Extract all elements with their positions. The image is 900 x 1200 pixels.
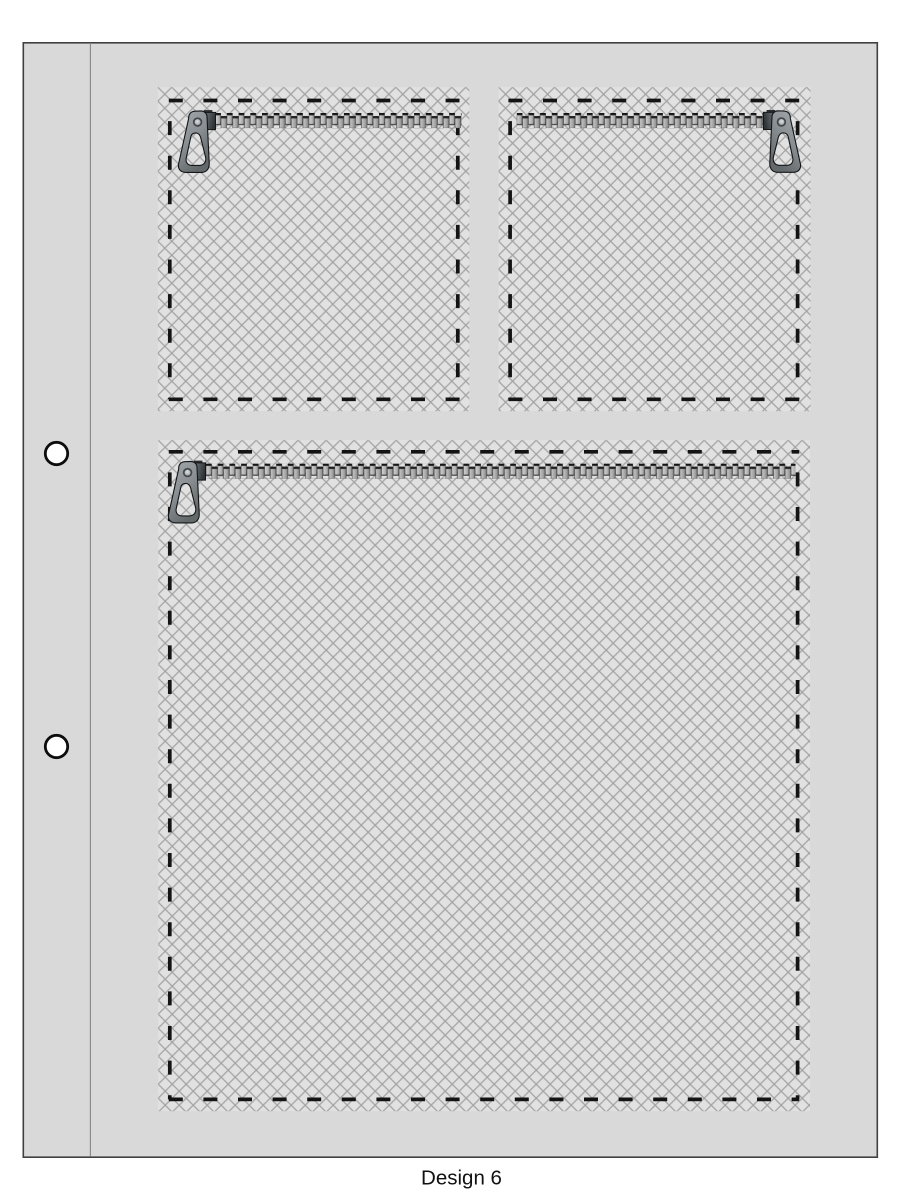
- svg-text:Design 6: Design 6: [421, 1167, 502, 1190]
